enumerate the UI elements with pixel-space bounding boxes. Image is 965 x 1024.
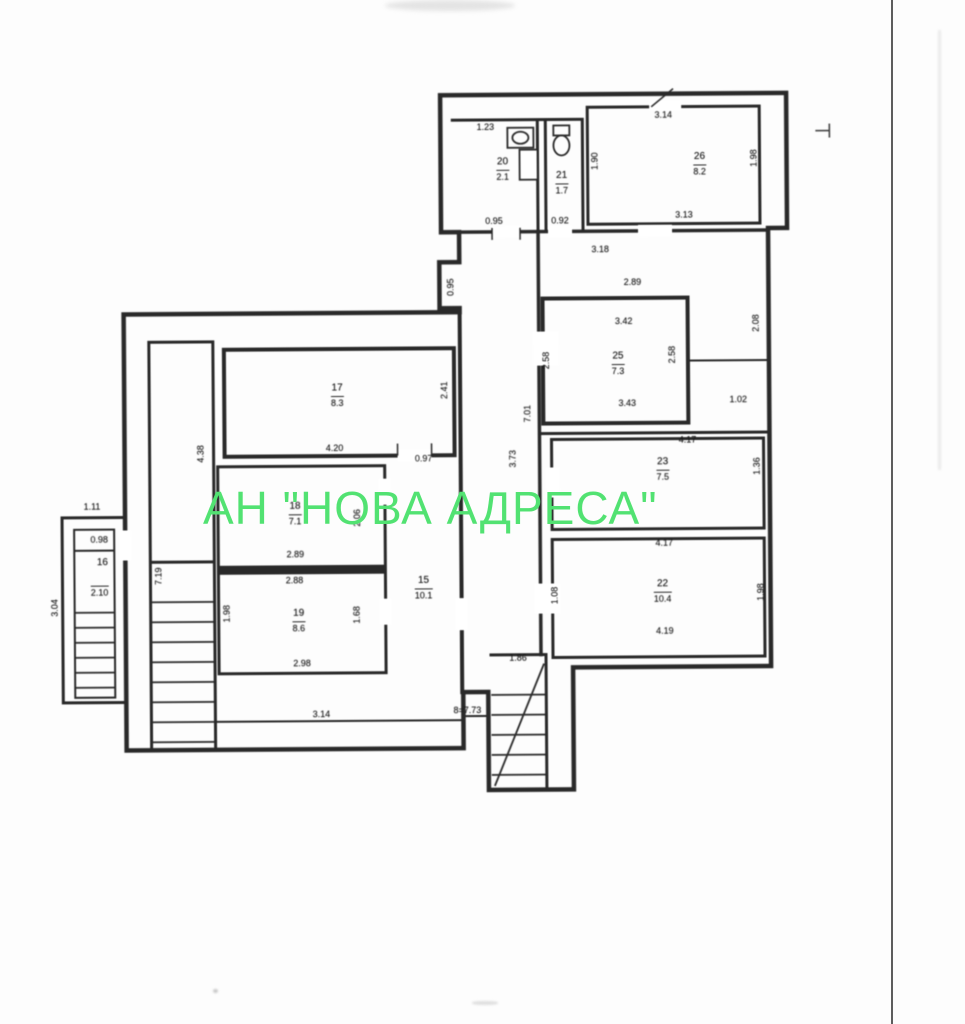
room-number-label: 26	[694, 151, 705, 162]
dimension-label: 3.18	[591, 244, 609, 254]
dimension-label: 3.43	[618, 398, 636, 408]
dimension-label: 7.19	[153, 567, 163, 585]
dimension-label: 4.17	[655, 538, 673, 548]
room-area-label: 2.10	[91, 586, 109, 598]
dimension-label: 3.04	[50, 599, 60, 617]
scan-artifact-line	[891, 0, 893, 1024]
room-number-label: 23	[657, 456, 668, 467]
dimension-label: 1.68	[352, 606, 362, 624]
room-area-label: 8.6	[293, 621, 306, 633]
room-area-label: 2.1	[496, 170, 509, 182]
room-area-label: 8.2	[693, 164, 706, 176]
dimension-label: 1.36	[752, 457, 762, 475]
dimension-label: 3.13	[675, 210, 693, 220]
dimension-label: 1.11	[83, 502, 100, 512]
dimension-label: 0.97	[415, 453, 433, 463]
room-number-label: 22	[657, 578, 668, 589]
dimension-label: 2.58	[541, 352, 551, 370]
dimension-label: 3.14	[654, 110, 672, 120]
dimension-label: 1.98	[756, 583, 766, 601]
dimension-label: 3.73	[508, 450, 518, 468]
room-area-label: 1.7	[555, 183, 568, 195]
room-number-label: 19	[293, 608, 304, 619]
room-number-label: 16	[97, 557, 108, 568]
room-number-label: 20	[497, 156, 508, 167]
watermark: АН "НОВА АДРЕСА"	[203, 481, 658, 535]
room-area-label: 7.3	[612, 364, 625, 376]
dimension-label: 1.08	[550, 587, 560, 605]
dimension-label: 0.92	[551, 215, 569, 225]
scan-artifact-speck	[472, 1001, 498, 1005]
dimension-label: 0.98	[90, 535, 108, 545]
dimension-label: 3.14	[313, 709, 331, 719]
dimension-label: 2.58	[667, 346, 677, 364]
scanned-floor-plan-page: 1.23202.10.950.92211.73.14268.21.901.983…	[0, 0, 965, 1024]
dimension-label: 4.19	[656, 626, 674, 636]
dimension-label: 4.17	[679, 435, 697, 445]
room-number-label: 15	[418, 575, 429, 586]
dimension-label: 0.95	[485, 216, 503, 226]
dimension-label: 4.38	[196, 445, 206, 463]
dimension-label: 4.20	[326, 443, 344, 453]
dimension-label: 2.41	[439, 381, 449, 399]
dimension-label: 2.98	[293, 658, 311, 668]
dimension-label: 1.86	[509, 653, 527, 663]
dimension-label: 1.02	[729, 394, 747, 404]
dimension-label: 3.42	[615, 316, 633, 326]
dimension-label: 2.89	[624, 277, 642, 287]
dimension-label: 1.90	[589, 152, 599, 170]
scan-artifact-smudge	[385, 0, 515, 11]
dimension-label: 0.95	[445, 278, 455, 296]
scan-artifact-faint-line	[938, 30, 941, 470]
room-number-label: 21	[556, 170, 567, 181]
dimension-label: 2.88	[286, 575, 304, 585]
dimension-label: 2.08	[751, 314, 761, 332]
room-number-label: 17	[332, 382, 343, 393]
room-area-label: 7.5	[656, 470, 669, 482]
dimension-label: 1.23	[477, 122, 495, 132]
room-number-label: 25	[612, 351, 623, 362]
dimension-label: 1.98	[748, 149, 758, 167]
room-area-label: 10.4	[654, 592, 672, 604]
dimension-label: 2.89	[286, 549, 304, 559]
dimension-label: 8=7.73	[453, 705, 481, 715]
room-area-label: 10.1	[415, 588, 433, 600]
room-area-label: 8.3	[331, 396, 344, 408]
dimension-label: 7.01	[522, 405, 532, 423]
scan-artifact-speck	[213, 989, 218, 993]
dimension-label: 1.98	[222, 605, 232, 623]
